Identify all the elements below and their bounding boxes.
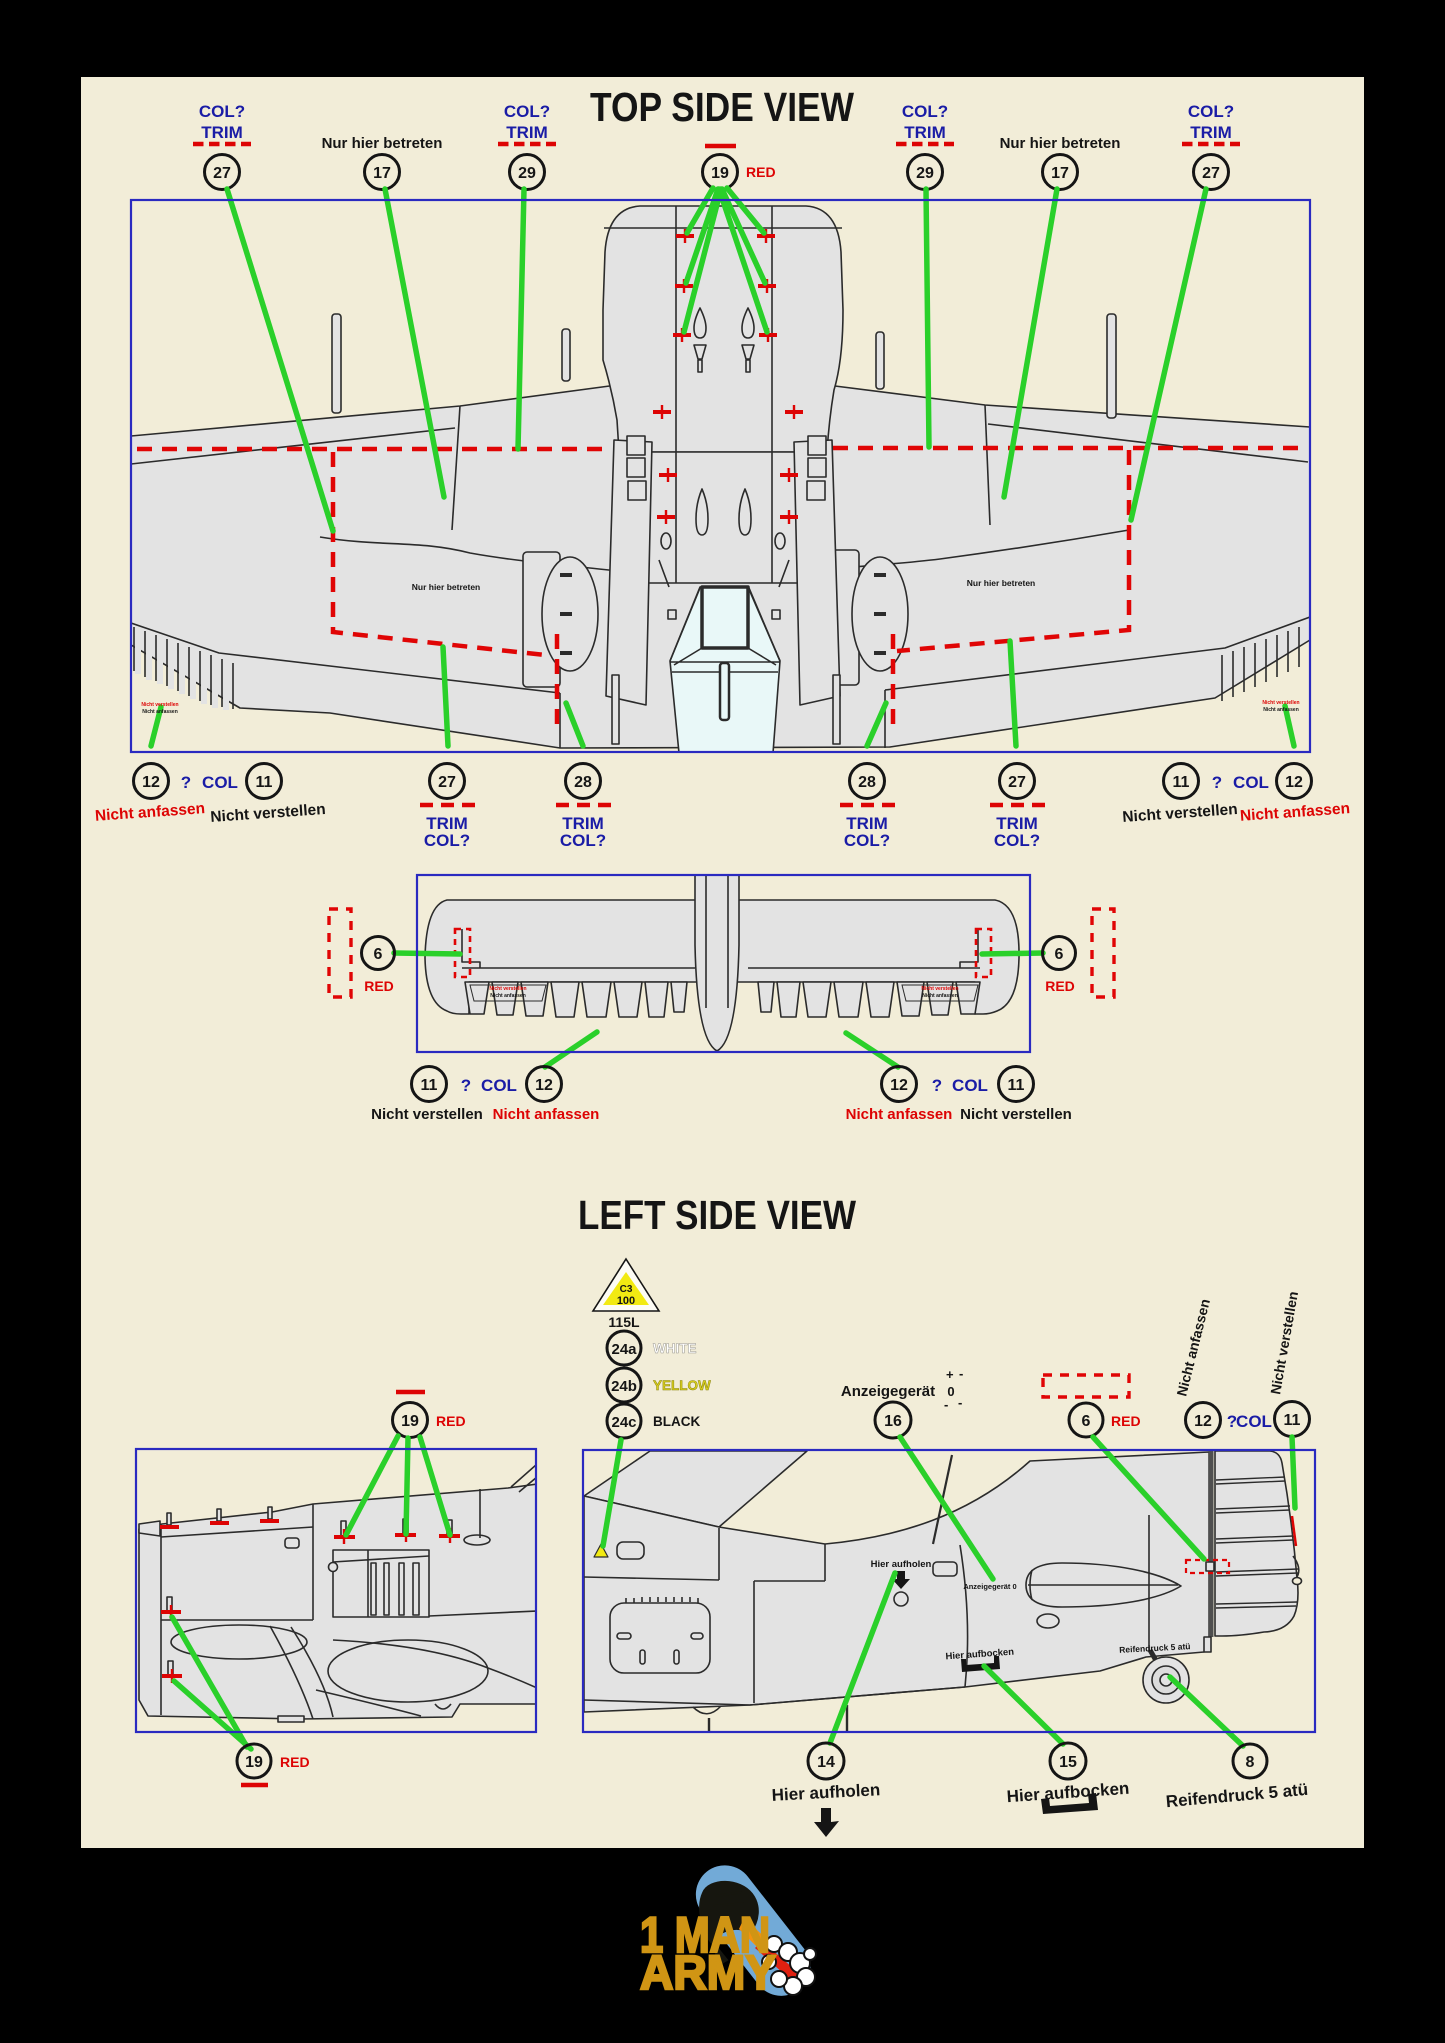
svg-text:Hier aufholen: Hier aufholen — [871, 1559, 932, 1570]
svg-text:0: 0 — [947, 1384, 954, 1399]
svg-text:27: 27 — [213, 165, 231, 182]
svg-text:29: 29 — [916, 165, 934, 182]
svg-text:TOP SIDE VIEW: TOP SIDE VIEW — [590, 84, 854, 130]
svg-text:12: 12 — [535, 1077, 553, 1094]
svg-text:COL?: COL? — [199, 102, 245, 121]
svg-text:COL?: COL? — [844, 831, 890, 850]
svg-text:19: 19 — [245, 1754, 263, 1771]
svg-text:BLACK: BLACK — [653, 1414, 700, 1429]
svg-text:Nur hier betreten: Nur hier betreten — [1000, 135, 1121, 152]
svg-text:LEFT SIDE VIEW: LEFT SIDE VIEW — [578, 1192, 856, 1238]
svg-text:-: - — [959, 1366, 963, 1381]
svg-text:Nicht anfassen: Nicht anfassen — [493, 1106, 600, 1123]
svg-text:Nicht anfassen: Nicht anfassen — [846, 1106, 953, 1123]
svg-text:27: 27 — [1202, 165, 1220, 182]
svg-text:12: 12 — [142, 774, 160, 791]
svg-text:14: 14 — [817, 1754, 835, 1771]
svg-text:6: 6 — [1082, 1413, 1091, 1430]
svg-text:Nicht verstellen: Nicht verstellen — [1262, 700, 1299, 706]
svg-text:11: 11 — [1008, 1077, 1025, 1094]
svg-text:ARMY: ARMY — [640, 1947, 776, 2000]
svg-text:Anzeigegerät 0: Anzeigegerät 0 — [963, 1582, 1016, 1591]
svg-text:17: 17 — [373, 165, 391, 182]
svg-text:COL?: COL? — [902, 102, 948, 121]
svg-text:COL?: COL? — [504, 102, 550, 121]
svg-text:?: ? — [1212, 773, 1222, 792]
svg-text:COL?: COL? — [1188, 102, 1234, 121]
svg-text:WHITE: WHITE — [653, 1341, 697, 1356]
svg-text:RED: RED — [436, 1413, 466, 1429]
svg-text:Anzeigegerät: Anzeigegerät — [841, 1383, 935, 1400]
svg-text:Nicht verstellen: Nicht verstellen — [921, 986, 958, 992]
svg-text:27: 27 — [1008, 774, 1026, 791]
svg-text:24c: 24c — [611, 1414, 636, 1431]
svg-text:RED: RED — [746, 164, 776, 180]
svg-text:TRIM: TRIM — [506, 123, 548, 142]
svg-text:?: ? — [461, 1076, 471, 1095]
svg-text:RED: RED — [280, 1754, 310, 1770]
svg-text:Nicht anfassen: Nicht anfassen — [922, 993, 958, 999]
svg-text:COL: COL — [1233, 773, 1269, 792]
svg-text:Nur hier betreten: Nur hier betreten — [967, 578, 1036, 588]
svg-text:COL: COL — [481, 1076, 517, 1095]
svg-text:28: 28 — [858, 774, 876, 791]
svg-text:115L: 115L — [608, 1314, 640, 1330]
svg-text:?: ? — [181, 773, 191, 792]
svg-text:11: 11 — [256, 774, 273, 791]
svg-text:COL?: COL? — [560, 831, 606, 850]
svg-text:TRIM: TRIM — [1190, 123, 1232, 142]
svg-text:Nicht anfassen: Nicht anfassen — [1263, 707, 1299, 713]
svg-text:COL: COL — [202, 773, 238, 792]
svg-text:17: 17 — [1051, 165, 1069, 182]
svg-text:100: 100 — [617, 1295, 635, 1307]
svg-text:-: - — [958, 1395, 962, 1410]
svg-text:RED: RED — [364, 978, 394, 994]
svg-text:Nur hier betreten: Nur hier betreten — [412, 582, 481, 592]
svg-text:28: 28 — [574, 774, 592, 791]
svg-text:COL: COL — [1236, 1412, 1272, 1431]
svg-text:Nicht anfassen: Nicht anfassen — [490, 993, 526, 999]
svg-text:COL?: COL? — [994, 831, 1040, 850]
svg-text:Nicht verstellen: Nicht verstellen — [371, 1106, 483, 1123]
svg-text:TRIM: TRIM — [904, 123, 946, 142]
svg-text:RED: RED — [1045, 978, 1075, 994]
svg-text:C3: C3 — [620, 1284, 633, 1295]
svg-text:+: + — [946, 1367, 954, 1382]
svg-text:19: 19 — [711, 165, 729, 182]
svg-text:6: 6 — [374, 946, 383, 963]
svg-text:Nur hier betreten: Nur hier betreten — [322, 135, 443, 152]
svg-text:TRIM: TRIM — [201, 123, 243, 142]
svg-text:19: 19 — [401, 1413, 419, 1430]
svg-text:12: 12 — [1285, 774, 1303, 791]
svg-text:24b: 24b — [611, 1378, 637, 1395]
svg-text:11: 11 — [421, 1077, 438, 1094]
svg-text:11: 11 — [1173, 774, 1190, 791]
svg-text:6: 6 — [1055, 946, 1064, 963]
svg-text:YELLOW: YELLOW — [653, 1378, 711, 1393]
svg-text:29: 29 — [518, 165, 536, 182]
svg-text:11: 11 — [1284, 1412, 1301, 1429]
svg-text:12: 12 — [1194, 1413, 1212, 1430]
svg-text:12: 12 — [890, 1077, 908, 1094]
svg-text:15: 15 — [1059, 1754, 1077, 1771]
svg-text:Nicht verstellen: Nicht verstellen — [489, 986, 526, 992]
svg-text:Nicht anfassen: Nicht anfassen — [142, 709, 178, 715]
svg-text:?: ? — [932, 1076, 942, 1095]
svg-text:27: 27 — [438, 774, 456, 791]
svg-text:16: 16 — [884, 1413, 902, 1430]
svg-text:COL?: COL? — [424, 831, 470, 850]
svg-text:COL: COL — [952, 1076, 988, 1095]
svg-text:24a: 24a — [611, 1341, 637, 1358]
svg-text:Nicht verstellen: Nicht verstellen — [960, 1106, 1072, 1123]
svg-text:-: - — [944, 1397, 948, 1412]
svg-text:RED: RED — [1111, 1413, 1141, 1429]
svg-text:8: 8 — [1246, 1754, 1255, 1771]
svg-text:Nicht verstellen: Nicht verstellen — [141, 702, 178, 708]
